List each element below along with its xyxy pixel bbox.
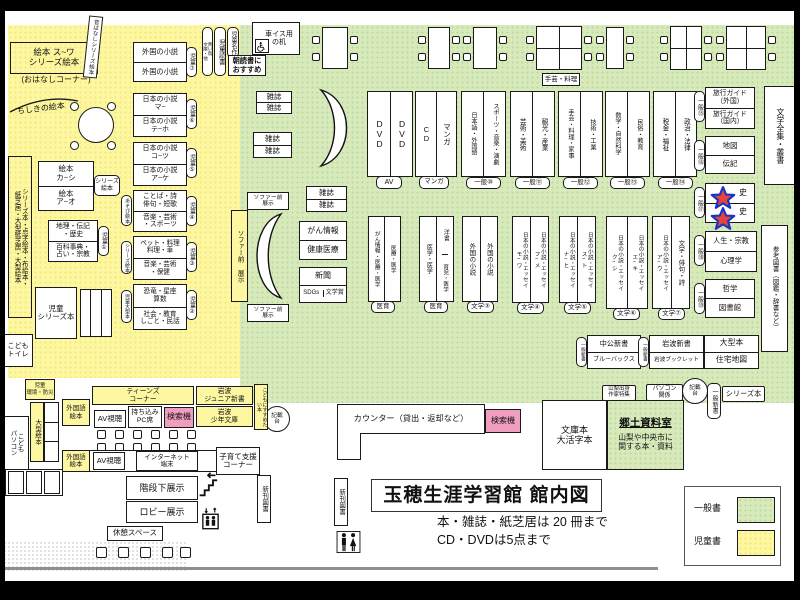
tag-bungaku-4: 文学④ xyxy=(517,302,544,314)
table-group xyxy=(660,26,712,70)
iwanami-shonen: 岩波 少年文庫 xyxy=(196,406,253,427)
tag-jido-meisaku: 児童名作 xyxy=(227,27,239,58)
sofa-front-display-bottom: ソファー前 展示 xyxy=(247,304,289,322)
table-group xyxy=(312,27,358,69)
floor-map: 絵本 ス~ワ シリーズ絵本 (おはなしコーナー) 昔ばなしシリーズ絵本 ちしきの… xyxy=(0,0,800,600)
tag-av: AV xyxy=(376,176,402,189)
elevator-icon xyxy=(202,507,219,530)
tag-series-ehon-2: シリーズ絵本 xyxy=(121,241,132,274)
tag-general-17: 一般⑰ xyxy=(694,187,705,218)
tag-jido-1: 児童① xyxy=(98,226,109,256)
shelf-geography-biography: 地理・伝記 ・歴史百科事典・ 占い・宗教 xyxy=(48,220,98,262)
shelf-large-books: 大型本住宅地図 xyxy=(704,335,759,369)
shelf-kotoba-poetry: ことば・詩 俳句・短歌音楽・芸術 ・スポーツ xyxy=(133,190,187,232)
frame-right xyxy=(794,0,800,600)
floor-line xyxy=(5,567,658,570)
search-machine-teens: 検索機 xyxy=(164,407,194,428)
tag-bungaku-3: 文学③ xyxy=(467,301,494,313)
tag-manga: マンガ xyxy=(419,176,449,189)
av-viewing-1: AV視聴 xyxy=(94,410,126,428)
tag-jido-dokusho: 児童読書 xyxy=(214,27,226,76)
tag-bungaku-6: 文学⑥ xyxy=(613,308,640,320)
kyodo-title: 郷土資料室 xyxy=(619,418,672,430)
chair xyxy=(70,141,79,150)
shelf-general-14: 税金・福祉政治・法律 xyxy=(653,91,697,177)
tag-general-14: 一般⑭ xyxy=(658,177,693,189)
lobby-display: ロビー展示 xyxy=(126,501,198,523)
chair xyxy=(70,102,79,111)
shelf-series-braille-strip: シリーズ本・点字絵本・布絵本・ 紙芝居・大型紙芝居・大型絵本 xyxy=(8,156,32,318)
tag-yamanashi-authors: 山梨出身 作家特集 xyxy=(602,385,636,401)
shelf-pet-cooking: ペット・料理 料理・車音楽・芸術 ・保健 xyxy=(133,236,187,280)
shelf-dvd: DVDDVD xyxy=(367,91,413,177)
shelf-reference-books: 参考図書（図鑑・辞書など） xyxy=(761,225,788,352)
kaidan-shita-display: 階段下展示 xyxy=(126,476,198,500)
shelf-ogata-ehon: 大型絵本 xyxy=(30,402,44,462)
kodomo-toilet: こども トイレ xyxy=(3,334,33,367)
shelf-travel-guides: 旅行ガイド （外国）旅行ガイド （国内） xyxy=(705,87,755,129)
shelf-jp-essay-4: 日本の小説・エッセイ モ~ワ日本の小説・エッセイ フ~メ xyxy=(512,216,549,303)
tag-general-11: 一般⑪ xyxy=(515,177,550,189)
shelf-magazines-c: 雑誌雑誌 xyxy=(306,186,347,212)
legend: 一般書 児童書 xyxy=(684,486,781,566)
sofa-front-display-top: ソファー前 展示 xyxy=(247,192,289,210)
internet-terminal: インターネット 端末 xyxy=(136,451,198,471)
tag-jido-3: 児童③ xyxy=(186,242,197,272)
stool xyxy=(140,547,151,558)
tag-pc-related: パソコン 関係 xyxy=(646,384,683,401)
frame-left xyxy=(0,0,5,600)
tag-jido-6: 児童⑥ xyxy=(186,99,197,129)
iwanami-junior: 岩波 ジュニア新書 xyxy=(196,386,253,405)
shelf-general-13: 数学・自然科学民俗・教育 xyxy=(605,91,650,177)
bench xyxy=(5,469,63,496)
shelf-jp-essay-6: 日本の小説・エッセイ ク~シ日本の小説・エッセイ エ~キ xyxy=(606,216,648,309)
shelf-general-12: 手芸・料理・家事技術・工業 xyxy=(558,91,603,177)
sofa-front-display-strip: ソファー前 展示 xyxy=(231,210,248,302)
legend-general-label: 一般書 xyxy=(694,503,734,513)
tag-general-10: 一般⑩ xyxy=(466,177,501,189)
series-ehon-tag: シリーズ 絵本 xyxy=(94,175,120,196)
kyodo-desc: 山梨や中央市に 関する本・資料 xyxy=(618,434,673,451)
shelf-ehon-ka-a: 絵本 カ~シ絵本 ア~オ xyxy=(38,161,94,211)
legend-children-swatch xyxy=(737,530,775,556)
tag-jido-5: 児童⑤ xyxy=(186,148,197,178)
shelf-cd-manga: CDマンガ xyxy=(415,91,457,177)
gaikokugo-ehon-1: 外国語 絵本 xyxy=(62,399,90,426)
stool xyxy=(169,430,178,439)
frame-bottom xyxy=(0,581,800,600)
legend-children-label: 児童書 xyxy=(694,536,734,546)
restroom-icon xyxy=(336,531,361,553)
writing-stand-right: 記載 台 xyxy=(682,378,708,404)
tag-ippan-shinsho-3: 一般新書 xyxy=(707,383,721,419)
susumetai-strip: こどもにすすめたい本 xyxy=(254,384,268,430)
asadoku-box: 朝読書に おすすめ xyxy=(228,55,266,76)
tag-general-16: 一般⑯ xyxy=(694,140,705,171)
shelf-bunkobon: 文庫本 大活字本 xyxy=(542,400,607,470)
gaikokugo-ehon-2: 外国語 絵本 xyxy=(62,450,90,472)
shelf-chuko-shinsho: 中公新書ブルーバックス xyxy=(587,335,641,369)
reading-table xyxy=(78,107,114,143)
shelf-magazines-a: 雑誌雑誌 xyxy=(256,91,292,114)
shelf-general-10: 日本語・外国語スポーツ・音楽・演劇 xyxy=(461,91,506,177)
legend-general-swatch xyxy=(737,497,775,523)
loan-note-1: 本・雑誌・紙芝居は 20 冊まで xyxy=(437,513,622,530)
search-machine-counter: 検索機 xyxy=(485,409,521,433)
shelf-jido-foreign-novels: 外国の小説外国の小説 xyxy=(133,42,187,82)
shelf-cells-2 xyxy=(44,402,59,462)
tag-series-bon: シリーズ本 xyxy=(722,386,765,402)
wheelchair-icon xyxy=(255,39,269,53)
shelf-literature-complete: 文学全集・叢書 xyxy=(764,86,795,185)
tag-ippan-shinsho-1: 一般新書 xyxy=(576,337,587,367)
map-title: 玉穂生涯学習館 館内図 xyxy=(371,479,602,512)
tag-jido-ogata: 児童大型本 xyxy=(121,290,132,323)
stool xyxy=(96,547,107,558)
frame-top xyxy=(0,0,800,11)
stool xyxy=(187,430,196,439)
tag-iiku-1: 医育 xyxy=(371,301,395,313)
stool xyxy=(180,547,191,558)
tag-jido-4: 児童④ xyxy=(186,196,197,226)
tag-jido-7: 児童⑦ xyxy=(186,47,197,77)
kosodate-corner: 子育て支援 コーナー xyxy=(216,447,260,475)
table-group xyxy=(418,27,460,69)
table-group xyxy=(716,26,776,70)
table-group xyxy=(596,27,634,69)
table-group xyxy=(526,26,592,70)
counter-extension xyxy=(337,433,361,460)
stool xyxy=(133,430,142,439)
shelf-maps-biography: 地図伝記 xyxy=(705,136,755,174)
tag-general-19: 一般⑲ xyxy=(694,283,705,314)
tag-aoitori-bunko: 青い鳥 文庫・他 xyxy=(202,27,213,76)
teens-corner: ティーンズ コーナー xyxy=(92,386,194,405)
tag-jido-2: 児童② xyxy=(186,290,197,320)
stool xyxy=(118,547,129,558)
shelf-jido-jp-novels-ko: 日本の小説 コ~ツ日本の小説 ア~ケ xyxy=(133,142,187,186)
stool xyxy=(162,547,173,558)
shelf-cells xyxy=(80,289,112,337)
shelf-jp-essay-5: 日本の小説・エッセイ ナ~ヒ日本の小説・エッセイ ス~ト xyxy=(559,216,596,303)
kodomo-pc: こども パソコン xyxy=(3,416,29,470)
tag-ippan-shinsho-2: 一般新書 xyxy=(638,337,649,367)
chair xyxy=(107,141,116,150)
star-marker-icon xyxy=(710,207,736,231)
table-group xyxy=(463,27,507,69)
tag-general-12: 一般⑫ xyxy=(563,177,598,189)
shelf-jido-series: 児童 シリーズ本 xyxy=(35,287,77,339)
tag-general-18: 一般⑱ xyxy=(694,235,705,266)
tag-bungaku-5: 文学⑤ xyxy=(564,302,591,314)
byo-pc-seat: 持ち込み PC席 xyxy=(128,406,162,428)
sofa-crescent-top xyxy=(315,87,357,169)
shelf-dinosaur-math: 恐竜・星座 算数社会・教育 しごと・民話 xyxy=(133,284,187,330)
shelf-newspaper: 新聞 SDGs文学賞 xyxy=(299,267,347,303)
kyukei-space-label: 休憩スペース xyxy=(107,526,163,541)
shelf-jido-jp-novels-ma: 日本の小説 マ~日本の小説 テ~ホ xyxy=(133,93,187,137)
shugei-table-label: 手芸・料理 xyxy=(542,73,580,86)
shelf-philosophy: 哲学図書館 xyxy=(705,279,755,318)
stool xyxy=(151,430,160,439)
chair xyxy=(107,102,116,111)
shelf-cancer-health: がん情報健康医療 xyxy=(299,221,347,260)
shelf-general-11: 芸術・美術観光・産業 xyxy=(510,91,555,177)
shelf-life-religion: 人生・宗教心理学 xyxy=(705,231,757,272)
shinkan-tosho-2: 新刊図書 xyxy=(334,478,348,526)
stairs-icon xyxy=(198,472,218,497)
counter: カウンター（貸出・返却など） xyxy=(337,404,485,434)
shelf-medical-2: 医学・医学 洋書育児・医学 xyxy=(419,216,454,302)
sofa-crescent-mid xyxy=(249,211,287,301)
tag-bungaku-7: 文学⑦ xyxy=(658,308,685,320)
shelf-medical-1: がん情報・医療・医学医療・医学 xyxy=(368,216,401,302)
stool xyxy=(97,430,106,439)
tag-asobi-ehon: あそび絵本 xyxy=(121,195,132,226)
shelf-magazines-b: 雑誌雑誌 xyxy=(253,132,292,158)
tag-iiku-2: 医育 xyxy=(424,301,448,313)
stool xyxy=(115,430,124,439)
shelf-foreign-novels: 外国の小説外国の小説 xyxy=(462,216,498,302)
shinkan-tosho-1: 新刊図書 xyxy=(257,475,271,523)
shelf-iwanami-shinsho: 岩波新書岩波ブックレット xyxy=(649,335,704,369)
loan-note-2: CD・DVDは5点まで xyxy=(437,531,622,548)
tag-general-15: 一般⑮ xyxy=(694,91,705,122)
av-viewing-2: AV視聴 xyxy=(93,452,125,470)
tag-general-13: 一般⑬ xyxy=(610,177,645,189)
kyodo-shiryoshitsu: 郷土資料室 山梨や中央市に 関する本・資料 xyxy=(607,400,684,470)
jido-kankyo-bosai: 児童 環境・防災 xyxy=(25,379,55,400)
shelf-jp-essay-7: 日本の小説・エッセイ ア~ウ文学・俳句・詩 xyxy=(652,216,690,309)
